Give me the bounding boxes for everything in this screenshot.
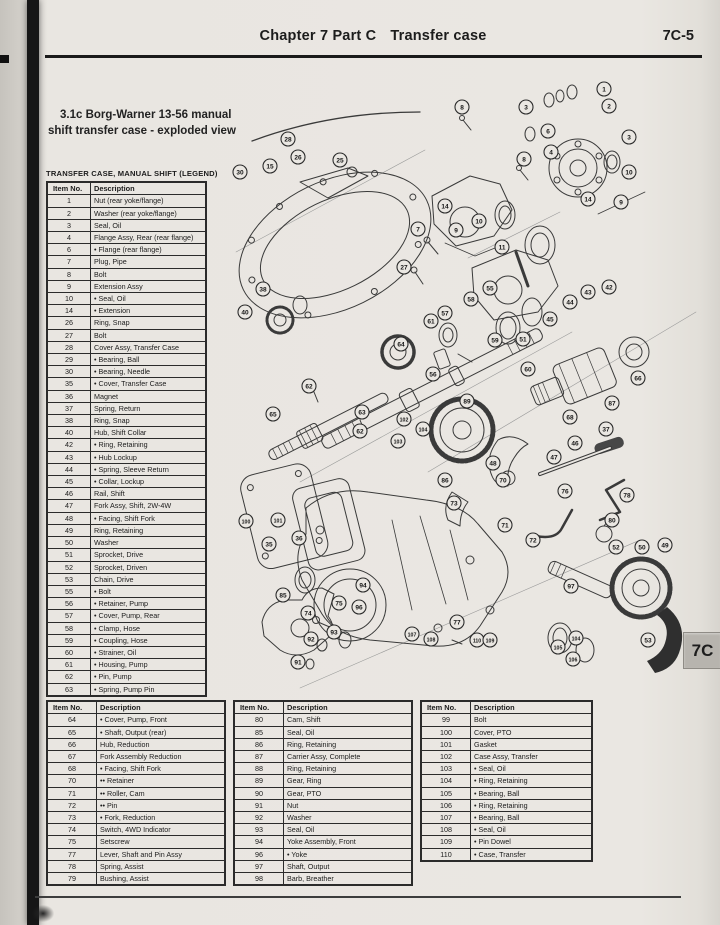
- diagram-callout-57: 57: [438, 306, 452, 320]
- page-corner-shadow: [28, 902, 58, 925]
- svg-text:65: 65: [269, 411, 277, 418]
- diagram-callout-10: 10: [622, 165, 636, 179]
- svg-text:87: 87: [608, 400, 616, 407]
- diagram-callout-66: 66: [631, 371, 645, 385]
- diagram-callout-87: 87: [605, 396, 619, 410]
- svg-text:36: 36: [295, 535, 303, 542]
- diagram-callout-59: 59: [488, 333, 502, 347]
- svg-text:77: 77: [453, 619, 461, 626]
- svg-text:52: 52: [612, 544, 620, 551]
- svg-text:94: 94: [359, 582, 367, 589]
- svg-text:4: 4: [549, 149, 553, 156]
- svg-text:66: 66: [634, 375, 642, 382]
- svg-text:107: 107: [408, 632, 417, 638]
- diagram-callout-14: 14: [438, 199, 452, 213]
- diagram-callout-64: 64: [394, 337, 408, 351]
- svg-text:43: 43: [584, 289, 592, 296]
- svg-text:15: 15: [266, 163, 274, 170]
- svg-text:96: 96: [355, 604, 363, 611]
- diagram-callout-74: 74: [301, 606, 315, 620]
- diagram-callout-61: 61: [424, 314, 438, 328]
- exploded-view-diagram: 1238634810149141092826251530711274243444…: [0, 0, 720, 925]
- diagram-callout-62: 62: [353, 424, 367, 438]
- diagram-callout-6: 6: [541, 124, 555, 138]
- svg-text:56: 56: [429, 371, 437, 378]
- svg-text:8: 8: [460, 104, 464, 111]
- svg-text:62: 62: [305, 383, 313, 390]
- svg-text:30: 30: [236, 169, 244, 176]
- diagram-callout-63: 63: [355, 405, 369, 419]
- diagram-callout-28: 28: [281, 132, 295, 146]
- diagram-callout-91: 91: [291, 655, 305, 669]
- diagram-callout-10: 10: [472, 214, 486, 228]
- diagram-callout-108: 108: [424, 632, 438, 646]
- diagram-callout-72: 72: [526, 533, 540, 547]
- diagram-callout-92: 92: [304, 632, 318, 646]
- diagram-callout-15: 15: [263, 159, 277, 173]
- diagram-callout-7: 7: [411, 222, 425, 236]
- svg-text:7: 7: [416, 226, 420, 233]
- diagram-callout-102: 102: [397, 412, 411, 426]
- svg-text:76: 76: [561, 488, 569, 495]
- svg-text:110: 110: [473, 638, 481, 644]
- diagram-callout-9: 9: [614, 195, 628, 209]
- diagram-callout-42: 42: [602, 280, 616, 294]
- diagram-callout-65: 65: [266, 407, 280, 421]
- svg-text:50: 50: [638, 544, 646, 551]
- diagram-callout-35: 35: [262, 537, 276, 551]
- svg-text:14: 14: [441, 203, 449, 210]
- diagram-callout-105: 105: [551, 640, 565, 654]
- diagram-callout-68: 68: [563, 410, 577, 424]
- diagram-callout-101: 101: [271, 513, 285, 527]
- svg-text:45: 45: [546, 316, 554, 323]
- svg-text:38: 38: [259, 286, 267, 293]
- svg-text:10: 10: [475, 218, 483, 225]
- diagram-callout-76: 76: [558, 484, 572, 498]
- diagram-callout-1: 1: [597, 82, 611, 96]
- svg-text:104: 104: [572, 636, 581, 642]
- svg-text:8: 8: [522, 156, 526, 163]
- svg-text:105: 105: [554, 645, 563, 651]
- diagram-callout-110: 110: [470, 633, 484, 647]
- svg-text:62: 62: [356, 428, 364, 435]
- svg-text:70: 70: [499, 477, 507, 484]
- diagram-callout-50: 50: [635, 540, 649, 554]
- svg-text:93: 93: [330, 629, 338, 636]
- diagram-callout-45: 45: [543, 312, 557, 326]
- diagram-callout-3: 3: [622, 130, 636, 144]
- diagram-callout-26: 26: [291, 150, 305, 164]
- svg-text:49: 49: [661, 542, 669, 549]
- svg-text:109: 109: [486, 638, 495, 644]
- svg-text:10: 10: [625, 169, 633, 176]
- diagram-callout-37: 37: [599, 422, 613, 436]
- svg-text:6: 6: [546, 128, 550, 135]
- svg-text:44: 44: [566, 299, 574, 306]
- diagram-callout-96: 96: [352, 600, 366, 614]
- diagram-callout-14: 14: [581, 192, 595, 206]
- diagram-callout-44: 44: [563, 295, 577, 309]
- diagram-callout-56: 56: [426, 367, 440, 381]
- svg-text:40: 40: [241, 309, 249, 316]
- svg-text:2: 2: [607, 103, 611, 110]
- diagram-callout-109: 109: [483, 633, 497, 647]
- diagram-callout-93: 93: [327, 625, 341, 639]
- svg-text:86: 86: [441, 477, 449, 484]
- svg-text:72: 72: [529, 537, 537, 544]
- svg-text:47: 47: [550, 454, 558, 461]
- diagram-callout-53: 53: [641, 633, 655, 647]
- svg-text:51: 51: [519, 336, 527, 343]
- diagram-callout-51: 51: [516, 332, 530, 346]
- svg-text:58: 58: [467, 296, 475, 303]
- svg-text:3: 3: [627, 134, 631, 141]
- svg-text:68: 68: [566, 414, 574, 421]
- diagram-callout-78: 78: [620, 488, 634, 502]
- diagram-callout-8: 8: [455, 100, 469, 114]
- svg-text:103: 103: [394, 439, 403, 445]
- diagram-callout-104: 104: [569, 631, 583, 645]
- diagram-callout-8: 8: [517, 152, 531, 166]
- thumb-tab: 7C: [683, 632, 720, 669]
- diagram-callout-100: 100: [239, 514, 253, 528]
- diagram-callout-80: 80: [605, 513, 619, 527]
- diagram-callout-47: 47: [547, 450, 561, 464]
- diagram-callout-85: 85: [276, 588, 290, 602]
- svg-text:25: 25: [336, 157, 344, 164]
- diagram-callout-70: 70: [496, 473, 510, 487]
- svg-text:53: 53: [644, 637, 652, 644]
- svg-text:55: 55: [486, 285, 494, 292]
- diagram-callout-38: 38: [256, 282, 270, 296]
- diagram-callout-3: 3: [519, 100, 533, 114]
- diagram-callout-104: 104: [416, 422, 430, 436]
- svg-text:80: 80: [608, 517, 616, 524]
- svg-text:91: 91: [294, 659, 302, 666]
- svg-text:100: 100: [242, 519, 251, 525]
- svg-text:3: 3: [524, 104, 528, 111]
- svg-text:89: 89: [463, 398, 471, 405]
- svg-text:9: 9: [619, 199, 623, 206]
- diagram-callout-46: 46: [568, 436, 582, 450]
- footer-rule: [35, 896, 681, 898]
- svg-text:78: 78: [623, 492, 631, 499]
- diagram-callout-94: 94: [356, 578, 370, 592]
- diagram-callout-62: 62: [302, 379, 316, 393]
- diagram-callout-107: 107: [405, 627, 419, 641]
- svg-text:42: 42: [605, 284, 613, 291]
- svg-text:106: 106: [569, 657, 578, 663]
- svg-text:63: 63: [358, 409, 366, 416]
- svg-text:35: 35: [265, 541, 273, 548]
- diagram-callout-103: 103: [391, 434, 405, 448]
- diagram-callout-48: 48: [486, 456, 500, 470]
- diagram-callout-58: 58: [464, 292, 478, 306]
- svg-text:71: 71: [501, 522, 509, 529]
- diagram-callout-4: 4: [544, 145, 558, 159]
- svg-text:60: 60: [524, 366, 532, 373]
- svg-text:59: 59: [491, 337, 499, 344]
- svg-text:28: 28: [284, 136, 292, 143]
- diagram-callout-77: 77: [450, 615, 464, 629]
- svg-text:57: 57: [441, 310, 449, 317]
- svg-text:11: 11: [499, 244, 506, 251]
- svg-text:75: 75: [335, 600, 343, 607]
- svg-text:104: 104: [419, 427, 428, 433]
- diagram-callout-43: 43: [581, 285, 595, 299]
- diagram-callout-97: 97: [564, 579, 578, 593]
- diagram-callout-11: 11: [495, 240, 509, 254]
- diagram-callout-60: 60: [521, 362, 535, 376]
- svg-text:92: 92: [307, 636, 315, 643]
- svg-text:9: 9: [454, 227, 458, 234]
- svg-text:101: 101: [274, 518, 283, 524]
- diagram-callout-40: 40: [238, 305, 252, 319]
- diagram-callout-30: 30: [233, 165, 247, 179]
- diagram-callout-49: 49: [658, 538, 672, 552]
- diagram-callout-71: 71: [498, 518, 512, 532]
- svg-text:27: 27: [400, 264, 408, 271]
- diagram-callout-9: 9: [449, 223, 463, 237]
- svg-text:102: 102: [400, 417, 409, 423]
- svg-text:74: 74: [304, 610, 312, 617]
- svg-text:14: 14: [584, 196, 592, 203]
- diagram-callout-75: 75: [332, 596, 346, 610]
- svg-text:46: 46: [571, 440, 579, 447]
- diagram-callout-52: 52: [609, 540, 623, 554]
- diagram-callout-36: 36: [292, 531, 306, 545]
- svg-text:97: 97: [567, 583, 575, 590]
- svg-text:73: 73: [450, 500, 458, 507]
- svg-text:37: 37: [602, 426, 610, 433]
- diagram-callout-73: 73: [447, 496, 461, 510]
- diagram-callout-55: 55: [483, 281, 497, 295]
- diagram-callout-25: 25: [333, 153, 347, 167]
- diagram-callout-106: 106: [566, 652, 580, 666]
- svg-text:1: 1: [602, 86, 606, 93]
- diagram-callout-86: 86: [438, 473, 452, 487]
- diagram-callout-89: 89: [460, 394, 474, 408]
- svg-text:108: 108: [427, 637, 436, 643]
- svg-text:64: 64: [397, 341, 405, 348]
- diagram-callout-27: 27: [397, 260, 411, 274]
- svg-text:85: 85: [279, 592, 287, 599]
- svg-text:48: 48: [489, 460, 497, 467]
- diagram-callout-2: 2: [602, 99, 616, 113]
- svg-text:26: 26: [294, 154, 302, 161]
- svg-text:61: 61: [427, 318, 435, 325]
